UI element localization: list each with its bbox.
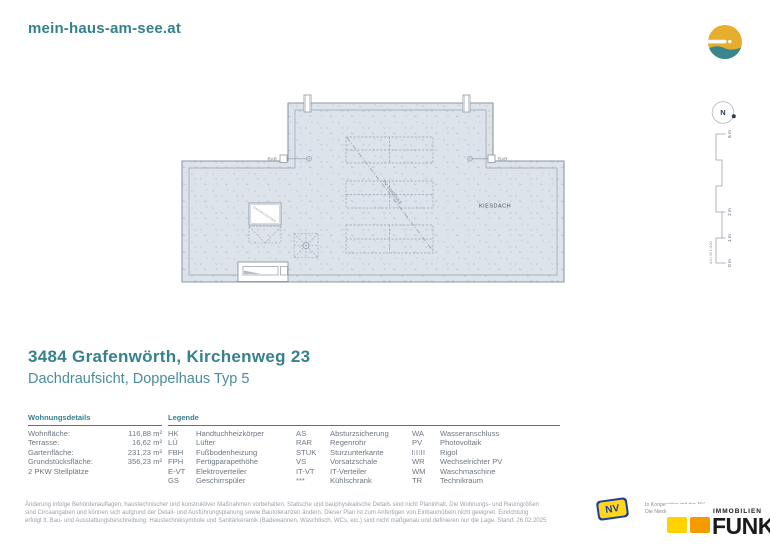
nv-logo-text: NV — [605, 503, 621, 516]
site-logo-text: mein-haus-am-see.at — [28, 20, 181, 37]
detail-label: Gartenfläche: — [28, 448, 74, 457]
rigol-hatch-icon — [412, 448, 440, 457]
legend-label: Sturzunterkante — [330, 448, 384, 457]
scale-1m: 1 m — [727, 234, 732, 242]
legend-abbr: VS — [296, 457, 330, 466]
legend-abbr: WA — [412, 429, 440, 438]
legend-column-2: ASAbsturzsicherung RARRegenrohr STUKStur… — [296, 429, 412, 486]
legend-abbr: FBH — [168, 448, 196, 457]
details-row: Gartenfläche: 231,23 m² — [28, 448, 162, 457]
legend-abbr: WM — [412, 467, 440, 476]
detail-value: 231,23 m² — [128, 448, 162, 457]
legend-abbr: FPH — [168, 457, 196, 466]
legend-abbr: RAR — [296, 438, 330, 447]
rar-label-left: RAR — [267, 157, 277, 162]
legend-label: Fertigparapethöhe — [196, 457, 258, 466]
detail-value: 116,88 m² — [128, 429, 162, 438]
funk-orange-square-icon — [690, 517, 710, 533]
legend-label: Technikraum — [440, 476, 483, 485]
roof-plan-drawing: RAR RAR PV: 6 MODULE — [180, 92, 570, 288]
legend-label: Handtuchheizkörper — [196, 429, 264, 438]
detail-label: 2 PKW Stellplätze — [28, 467, 89, 476]
details-row: Grundstücksfläche: 356,23 m² — [28, 457, 162, 466]
disclaimer-text: Änderung infolge Behördenauflagen, haust… — [25, 501, 605, 526]
legend-column-1: HKHandtuchheizkörper LÜLüfter FBHFußbode… — [168, 429, 296, 486]
scale-5m: 5 m — [727, 130, 732, 138]
legend-abbr: E-VT — [168, 467, 196, 476]
edge-detail-box — [238, 262, 288, 282]
legend-label: Lüfter — [196, 438, 215, 447]
legend-label: Vorsatzschale — [330, 457, 377, 466]
funk-text: FUNK — [712, 513, 770, 540]
kiesdach-label: KIESDACH — [479, 204, 511, 210]
disclaimer-line: erfolgt lt. Bau- und Ausstattungsbeschre… — [25, 517, 605, 525]
detail-label: Wohnfläche: — [28, 429, 70, 438]
details-heading: Wohnungsdetails — [28, 413, 162, 426]
detail-label: Terrasse: — [28, 438, 59, 447]
plan-sheet: mein-haus-am-see.at — [0, 0, 770, 545]
legend-abbr: GS — [168, 476, 196, 485]
apartment-details: Wohnungsdetails Wohnfläche: 116,88 m² Te… — [28, 413, 162, 476]
legend: Legende HKHandtuchheizkörper LÜLüfter FB… — [168, 413, 560, 486]
legend-label: Photovoltaik — [440, 438, 481, 447]
legend-abbr: AS — [296, 429, 330, 438]
legend-abbr: IT-VT — [296, 467, 330, 476]
vent-pipe-right — [463, 95, 470, 112]
funk-yellow-square-icon — [667, 517, 687, 533]
legend-column-3: WAWasseranschluss PVPhotovoltaik Rigol W… — [412, 429, 560, 486]
legend-label: Elektroverteiler — [196, 467, 247, 476]
legend-abbr: STUK — [296, 448, 330, 457]
legend-label: Fußbodenheizung — [196, 448, 257, 457]
details-row: Terrasse: 16,62 m² — [28, 438, 162, 447]
legend-label: Rigol — [440, 448, 457, 457]
sun-wave-logo-icon — [704, 22, 746, 66]
sheet-scale-label: A4 / M 1:200 — [708, 241, 713, 264]
legend-heading: Legende — [168, 413, 560, 426]
scale-0m: 0 m — [727, 259, 732, 267]
rar-label-right: RAR — [498, 157, 508, 162]
detail-value: 16,62 m² — [132, 438, 162, 447]
page-title-address: 3484 Grafenwörth, Kirchenweg 23 — [28, 347, 310, 367]
roof-access-hatch: DACHAUSSTIEG — [249, 203, 281, 225]
legend-label: Waschmaschine — [440, 467, 495, 476]
legend-label: Absturzsicherung — [330, 429, 389, 438]
disclaimer-line: sind Circaangaben und können sich aufgru… — [25, 509, 605, 517]
details-row: Wohnfläche: 116,88 m² — [28, 429, 162, 438]
detail-value: 356,23 m² — [128, 457, 162, 466]
legend-label: IT-Verteiler — [330, 467, 367, 476]
vent-pipe-left — [304, 95, 311, 112]
legend-label: Kühlschrank — [330, 476, 372, 485]
legend-label: Wechselrichter PV — [440, 457, 502, 466]
north-label: N — [720, 108, 725, 117]
details-row: 2 PKW Stellplätze — [28, 467, 162, 476]
scale-bar: 5 m 2 m 1 m 0 m A4 / M 1:200 — [698, 126, 746, 272]
legend-abbr: PV — [412, 438, 440, 447]
scale-2m: 2 m — [727, 208, 732, 216]
legend-abbr: *** — [296, 476, 330, 485]
detail-label: Grundstücksfläche: — [28, 457, 93, 466]
legend-abbr: HK — [168, 429, 196, 438]
legend-abbr: WR — [412, 457, 440, 466]
legend-abbr: LÜ — [168, 438, 196, 447]
disclaimer-line: Änderung infolge Behördenauflagen, haust… — [25, 501, 605, 509]
immobilien-funk-logo: IMMOBILIEN FUNK — [666, 504, 770, 540]
legend-abbr: TR — [412, 476, 440, 485]
nv-insurance-logo: NV — [596, 497, 629, 521]
legend-label: Regenrohr — [330, 438, 366, 447]
page-subtitle: Dachdraufsicht, Doppelhaus Typ 5 — [28, 371, 249, 387]
legend-label: Geschirrspüler — [196, 476, 245, 485]
legend-label: Wasseranschluss — [440, 429, 499, 438]
